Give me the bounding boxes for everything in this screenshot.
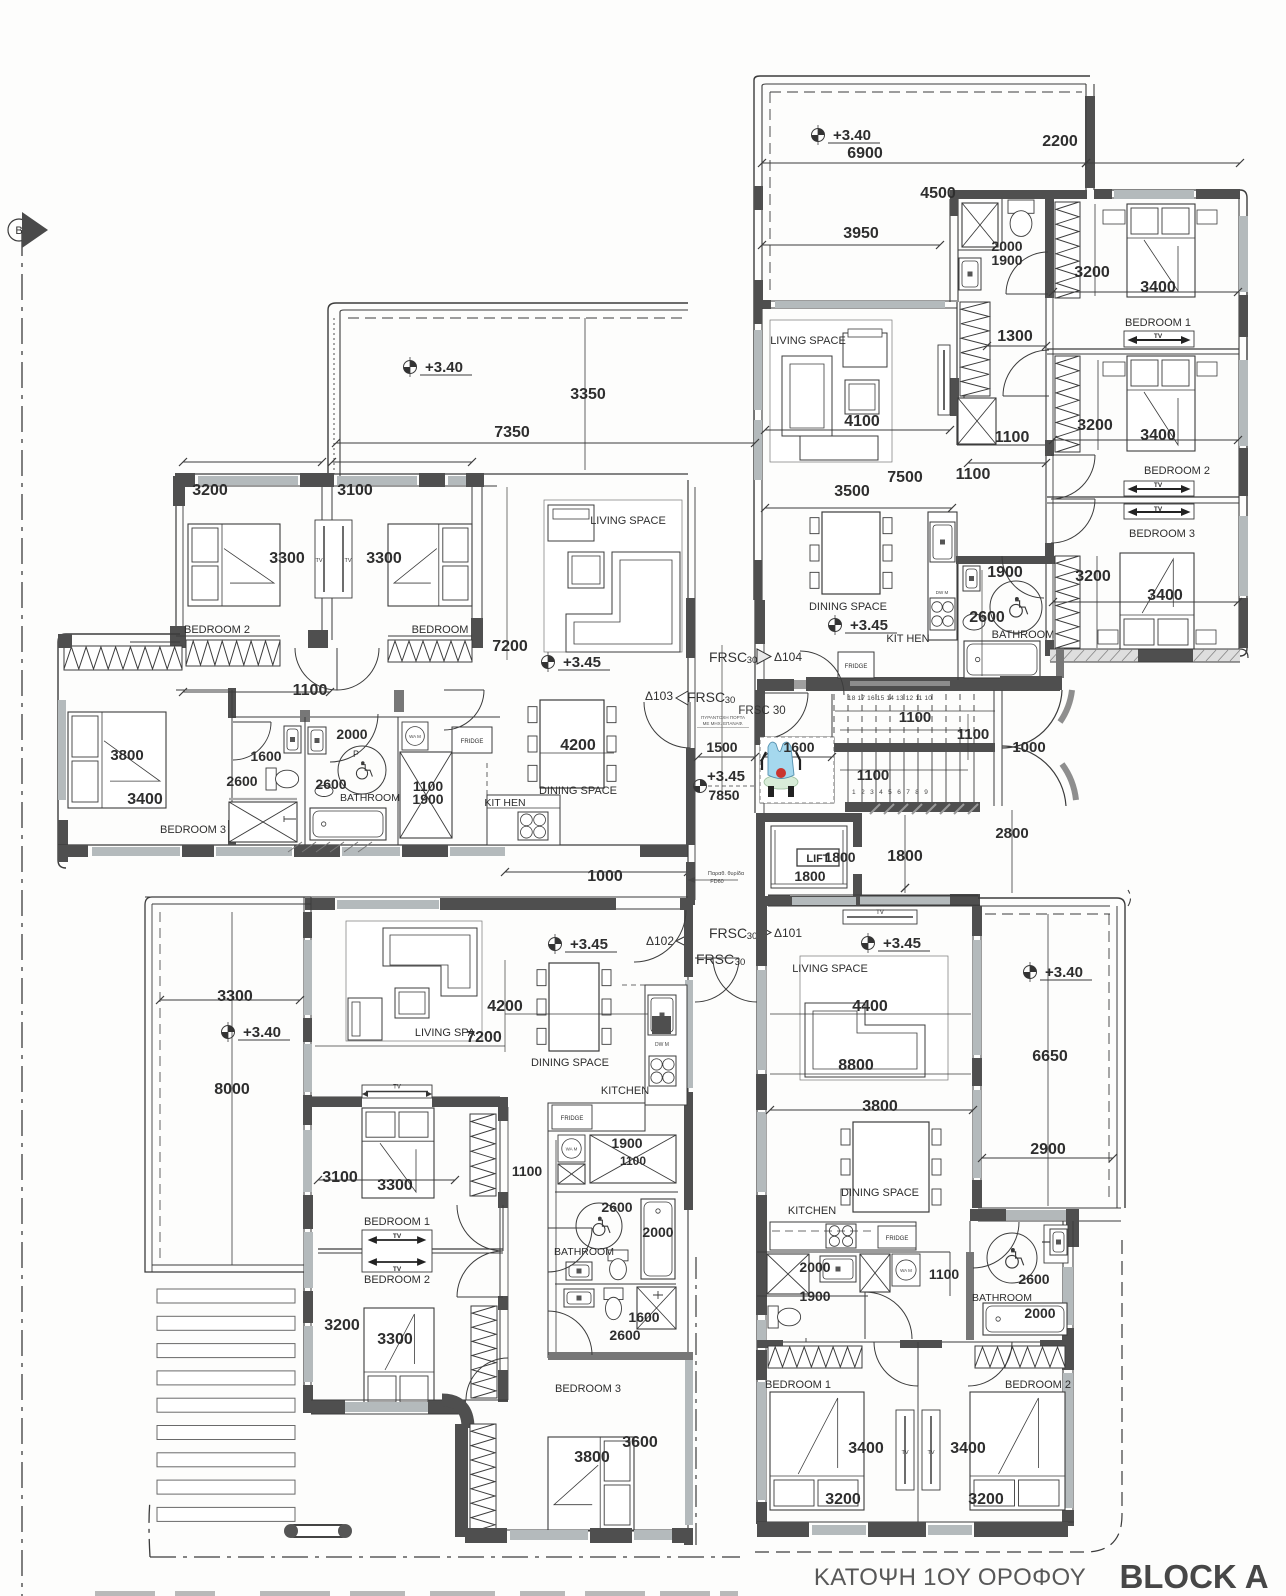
svg-text:+3.45: +3.45	[570, 936, 608, 953]
svg-text:1100: 1100	[995, 429, 1030, 446]
svg-text:TV: TV	[876, 910, 884, 916]
svg-text:TV: TV	[393, 1266, 402, 1273]
svg-text:3200: 3200	[825, 1491, 861, 1508]
svg-text:LIVING SPACE: LIVING SPACE	[590, 515, 666, 527]
svg-text:1100: 1100	[620, 1154, 646, 1168]
svg-text:FRSC: FRSC	[687, 689, 725, 705]
svg-text:KITCHEN: KITCHEN	[601, 1085, 649, 1097]
svg-text:WA M: WA M	[566, 1147, 578, 1152]
svg-text:BEDROOM 2: BEDROOM 2	[1144, 465, 1210, 477]
svg-text:3100: 3100	[322, 1169, 358, 1186]
svg-text:1100: 1100	[929, 1266, 960, 1282]
svg-text:3800: 3800	[110, 747, 143, 764]
svg-text:7500: 7500	[887, 469, 923, 486]
svg-text:3300: 3300	[217, 988, 253, 1005]
svg-text:4500: 4500	[920, 185, 956, 202]
svg-text:3400: 3400	[1147, 587, 1183, 604]
svg-text:+3.45: +3.45	[563, 654, 601, 671]
svg-text:BEDROOM 2: BEDROOM 2	[364, 1274, 430, 1286]
svg-text:1900: 1900	[987, 564, 1023, 581]
svg-text:3300: 3300	[269, 550, 305, 567]
svg-text:BEDROOM 2: BEDROOM 2	[184, 624, 250, 636]
svg-text:FRSC: FRSC	[696, 951, 734, 967]
svg-text:FRIDGE: FRIDGE	[561, 1116, 584, 1122]
svg-text:4400: 4400	[852, 998, 888, 1015]
svg-text:3100: 3100	[337, 482, 373, 499]
svg-text:DINING SPACE: DINING SPACE	[531, 1057, 609, 1069]
svg-text:1800: 1800	[794, 868, 825, 884]
svg-text:Δ101: Δ101	[774, 926, 802, 940]
svg-text:3800: 3800	[574, 1449, 610, 1466]
svg-text:1100: 1100	[899, 709, 932, 726]
svg-text:2000: 2000	[336, 726, 367, 742]
svg-text:FRSC: FRSC	[709, 649, 747, 665]
svg-text:FRSC 30: FRSC 30	[738, 705, 785, 717]
svg-text:+3.45: +3.45	[707, 768, 745, 785]
svg-text:3500: 3500	[834, 483, 870, 500]
svg-text:3400: 3400	[950, 1440, 986, 1457]
svg-text:2600: 2600	[609, 1327, 640, 1343]
svg-text:7200: 7200	[466, 1029, 502, 1046]
svg-text:BEDROOM: BEDROOM	[412, 624, 469, 636]
svg-text:WA M: WA M	[409, 734, 421, 739]
svg-text:2600: 2600	[601, 1199, 632, 1215]
svg-text:ΠΥΡΑΝΤΟΧΗ ΠΟΡΤΑ: ΠΥΡΑΝΤΟΧΗ ΠΟΡΤΑ	[701, 715, 745, 720]
svg-text:BLOCK A: BLOCK A	[1119, 1558, 1268, 1595]
svg-text:+3.45: +3.45	[850, 617, 888, 634]
svg-text:7350: 7350	[494, 424, 530, 441]
svg-text:FRIDGE: FRIDGE	[845, 664, 868, 670]
svg-text:KITCHEN: KITCHEN	[788, 1205, 836, 1217]
svg-text:2600: 2600	[1018, 1271, 1049, 1287]
svg-text:TV: TV	[901, 1450, 908, 1456]
svg-text:8000: 8000	[214, 1081, 250, 1098]
svg-text:3300: 3300	[366, 550, 402, 567]
svg-text:1900: 1900	[799, 1288, 830, 1304]
svg-text:3200: 3200	[192, 482, 228, 499]
svg-text:18 17 16 15 14 13 12 11 10: 18 17 16 15 14 13 12 11 10	[848, 695, 932, 702]
svg-text:BATHROOM: BATHROOM	[992, 629, 1055, 641]
svg-text:7850: 7850	[708, 787, 739, 803]
svg-text:1900: 1900	[991, 252, 1022, 268]
svg-text:2000: 2000	[642, 1224, 673, 1240]
svg-text:TV: TV	[1154, 333, 1163, 340]
svg-text:30: 30	[747, 655, 758, 666]
svg-text:1100: 1100	[956, 466, 991, 483]
svg-text:3200: 3200	[324, 1317, 360, 1334]
svg-text:3400: 3400	[1140, 427, 1176, 444]
svg-text:DINING SPACE: DINING SPACE	[809, 601, 887, 613]
svg-text:BEDROOM 3: BEDROOM 3	[160, 824, 226, 836]
svg-text:1100: 1100	[293, 682, 328, 699]
svg-text:DINING SPACE: DINING SPACE	[841, 1187, 919, 1199]
svg-text:30: 30	[735, 957, 746, 968]
svg-text:Δ102: Δ102	[646, 934, 674, 948]
svg-text:2200: 2200	[1042, 133, 1078, 150]
svg-text:BEDROOM 1: BEDROOM 1	[765, 1379, 831, 1391]
svg-text:1600: 1600	[628, 1309, 659, 1325]
svg-text:BATHROOM: BATHROOM	[972, 1292, 1032, 1304]
svg-text:FRIDGE: FRIDGE	[461, 739, 484, 745]
svg-text:DW M: DW M	[936, 590, 949, 595]
svg-text:1100: 1100	[857, 767, 890, 784]
svg-text:FRIDGE: FRIDGE	[886, 1236, 909, 1242]
svg-text:6650: 6650	[1032, 1048, 1068, 1065]
svg-text:4200: 4200	[560, 737, 596, 754]
svg-text:+3.40: +3.40	[243, 1024, 281, 1041]
svg-text:BATHROOM: BATHROOM	[554, 1246, 614, 1258]
svg-text:LIVING SPACE: LIVING SPACE	[770, 335, 846, 347]
svg-text:BEDROOM 1: BEDROOM 1	[364, 1216, 430, 1228]
svg-text:2600: 2600	[226, 773, 257, 789]
svg-text:TV: TV	[315, 558, 322, 564]
svg-text:1900: 1900	[412, 791, 443, 807]
svg-text:6900: 6900	[847, 145, 883, 162]
svg-text:Δ103: Δ103	[645, 689, 673, 703]
svg-text:TV: TV	[1154, 482, 1163, 489]
svg-text:Δ104: Δ104	[774, 650, 802, 664]
svg-text:3300: 3300	[377, 1331, 413, 1348]
svg-text:3400: 3400	[848, 1440, 884, 1457]
svg-text:1100: 1100	[957, 726, 990, 743]
svg-text:4200: 4200	[487, 998, 523, 1015]
svg-text:7200: 7200	[492, 638, 528, 655]
svg-text:+3.40: +3.40	[833, 127, 871, 144]
svg-text:8800: 8800	[838, 1057, 874, 1074]
svg-text:TV: TV	[393, 1085, 401, 1091]
svg-text:3350: 3350	[570, 386, 606, 403]
svg-text:WA M: WA M	[900, 1268, 912, 1273]
svg-text:2600: 2600	[969, 609, 1005, 626]
svg-text:BEDROOM 1: BEDROOM 1	[1125, 317, 1191, 329]
svg-text:2600: 2600	[315, 776, 346, 792]
svg-text:B: B	[15, 225, 22, 237]
svg-text:3200: 3200	[1075, 568, 1111, 585]
svg-text:30: 30	[725, 695, 736, 706]
svg-text:3950: 3950	[843, 225, 879, 242]
svg-text:4100: 4100	[844, 413, 880, 430]
svg-text:1500: 1500	[706, 739, 737, 755]
svg-text:2900: 2900	[1030, 1141, 1066, 1158]
svg-text:BATHROOM: BATHROOM	[340, 792, 400, 804]
svg-text:3800: 3800	[862, 1098, 898, 1115]
svg-text:30: 30	[747, 931, 758, 942]
svg-text:DINING SPACE: DINING SPACE	[539, 785, 617, 797]
svg-text:Παραθ. θυρίδα: Παραθ. θυρίδα	[708, 871, 745, 877]
svg-text:TV: TV	[927, 1450, 934, 1456]
svg-text:DW M: DW M	[655, 1042, 669, 1048]
svg-text:+3.40: +3.40	[425, 359, 463, 376]
svg-text:KIT HEN: KIT HEN	[886, 633, 929, 645]
svg-text:ΜΕ ΜΗΧ. ΕΠΑΝΑΦ.: ΜΕ ΜΗΧ. ΕΠΑΝΑΦ.	[703, 721, 744, 726]
svg-text:1300: 1300	[997, 328, 1033, 345]
svg-text:+3.40: +3.40	[1045, 964, 1083, 981]
svg-text:TV: TV	[1154, 506, 1163, 513]
svg-text:TV: TV	[344, 558, 351, 564]
svg-text:1900: 1900	[611, 1135, 642, 1151]
svg-text:1100: 1100	[512, 1163, 543, 1179]
svg-text:ΚΑΤΟΨΗ 1ΟΥ ΟΡΟΦΟΥ: ΚΑΤΟΨΗ 1ΟΥ ΟΡΟΦΟΥ	[814, 1564, 1086, 1591]
svg-text:FRSC: FRSC	[709, 925, 747, 941]
svg-text:1000: 1000	[587, 868, 623, 885]
svg-text:1600: 1600	[250, 748, 281, 764]
svg-text:LIVING SPACE: LIVING SPACE	[792, 963, 868, 975]
svg-text:3200: 3200	[1077, 417, 1113, 434]
svg-text:1600: 1600	[783, 739, 814, 755]
svg-text:3200: 3200	[968, 1491, 1004, 1508]
svg-text:BEDROOM 3: BEDROOM 3	[1129, 528, 1195, 540]
svg-text:BEDROOM 3: BEDROOM 3	[555, 1383, 621, 1395]
svg-text:3200: 3200	[1074, 264, 1110, 281]
svg-text:3600: 3600	[622, 1434, 658, 1451]
svg-text:3400: 3400	[127, 791, 163, 808]
svg-text:2000: 2000	[1024, 1305, 1055, 1321]
svg-text:1800: 1800	[824, 849, 855, 865]
svg-text:3400: 3400	[1140, 279, 1176, 296]
svg-text:KIT HEN: KIT HEN	[484, 797, 525, 809]
svg-text:1000: 1000	[1012, 739, 1045, 756]
svg-text:2000: 2000	[799, 1259, 830, 1275]
svg-text:3300: 3300	[377, 1177, 413, 1194]
svg-text:TV: TV	[393, 1233, 402, 1240]
svg-text:+3.45: +3.45	[883, 935, 921, 952]
svg-text:1 2 3 4 5 6 7 8: 1 2 3 4 5 6 7 8 9	[852, 789, 928, 796]
svg-text:BEDROOM 2: BEDROOM 2	[1005, 1379, 1071, 1391]
